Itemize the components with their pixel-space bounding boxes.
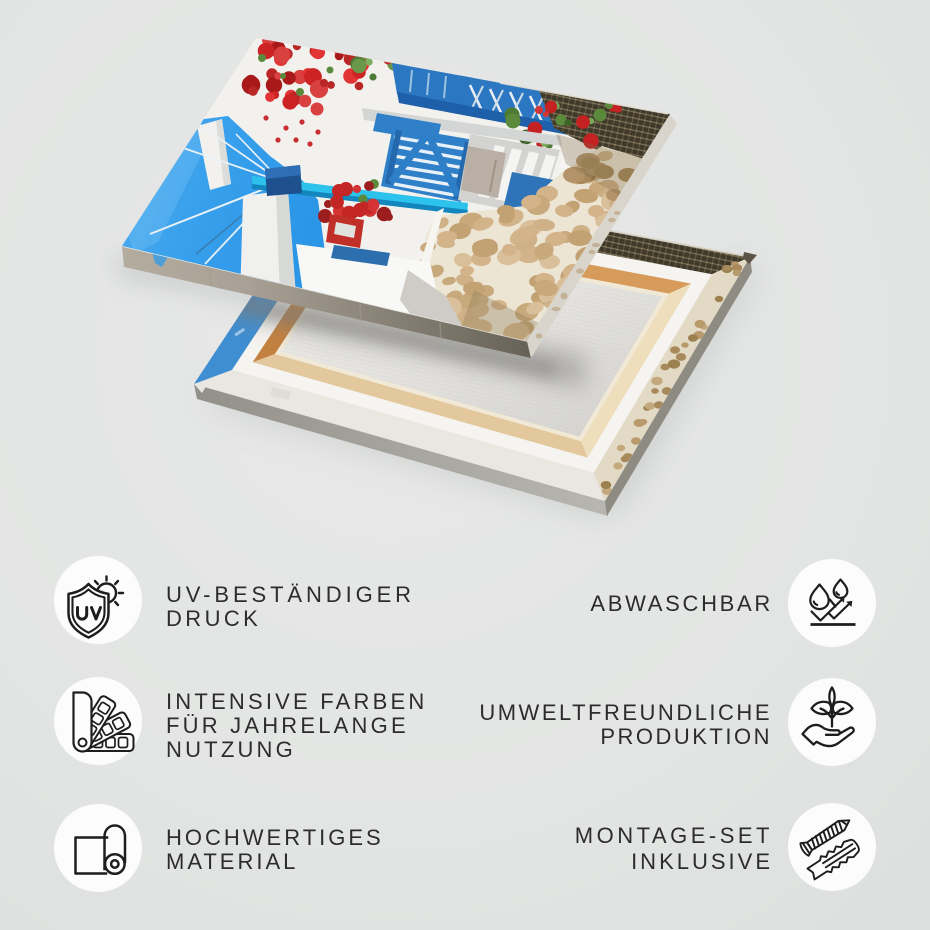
svg-text:HOCHWERTIGES: HOCHWERTIGES	[166, 825, 384, 850]
svg-text:UMWELTFREUNDLICHE: UMWELTFREUNDLICHE	[479, 700, 772, 725]
svg-text:INTENSIVE FARBEN: INTENSIVE FARBEN	[166, 689, 427, 714]
svg-text:FÜR JAHRELANGE: FÜR JAHRELANGE	[166, 713, 409, 738]
svg-text:DRUCK: DRUCK	[166, 606, 261, 631]
svg-text:UV-BESTÄNDIGER: UV-BESTÄNDIGER	[166, 582, 415, 607]
svg-text:PRODUKTION: PRODUKTION	[600, 724, 772, 749]
svg-text:INKLUSIVE: INKLUSIVE	[631, 849, 773, 874]
svg-text:MONTAGE-SET: MONTAGE-SET	[575, 823, 773, 848]
svg-text:MATERIAL: MATERIAL	[166, 849, 298, 874]
svg-text:ABWASCHBAR: ABWASCHBAR	[590, 591, 773, 616]
svg-text:NUTZUNG: NUTZUNG	[166, 737, 296, 762]
